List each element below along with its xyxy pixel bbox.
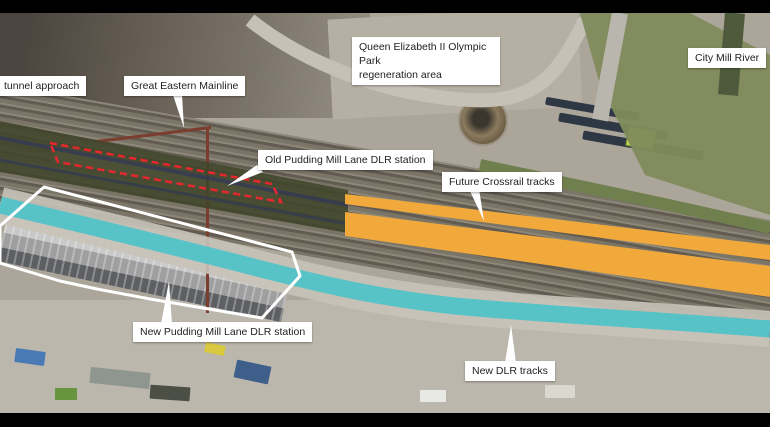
pointer-new-dlr bbox=[505, 325, 516, 363]
pointer-great-eastern bbox=[173, 95, 184, 128]
letterbox-bar-bottom bbox=[0, 413, 770, 427]
annotated-aerial-figure: tunnel approach Great Eastern Mainline Q… bbox=[0, 0, 770, 427]
label-great-eastern-mainline: Great Eastern Mainline bbox=[124, 76, 245, 96]
label-city-mill-river: City Mill River bbox=[688, 48, 766, 68]
label-new-station: New Pudding Mill Lane DLR station bbox=[133, 322, 312, 342]
letterbox-bar-top bbox=[0, 0, 770, 13]
label-old-station: Old Pudding Mill Lane DLR station bbox=[258, 150, 433, 170]
label-olympic-park-line2: regeneration area bbox=[359, 68, 493, 82]
label-olympic-park-line1: Queen Elizabeth II Olympic Park bbox=[359, 40, 493, 68]
label-tunnel-approach: tunnel approach bbox=[0, 76, 86, 96]
label-new-dlr-tracks: New DLR tracks bbox=[465, 361, 555, 381]
label-future-crossrail: Future Crossrail tracks bbox=[442, 172, 562, 192]
label-olympic-park: Queen Elizabeth II Olympic Park regenera… bbox=[352, 37, 500, 85]
